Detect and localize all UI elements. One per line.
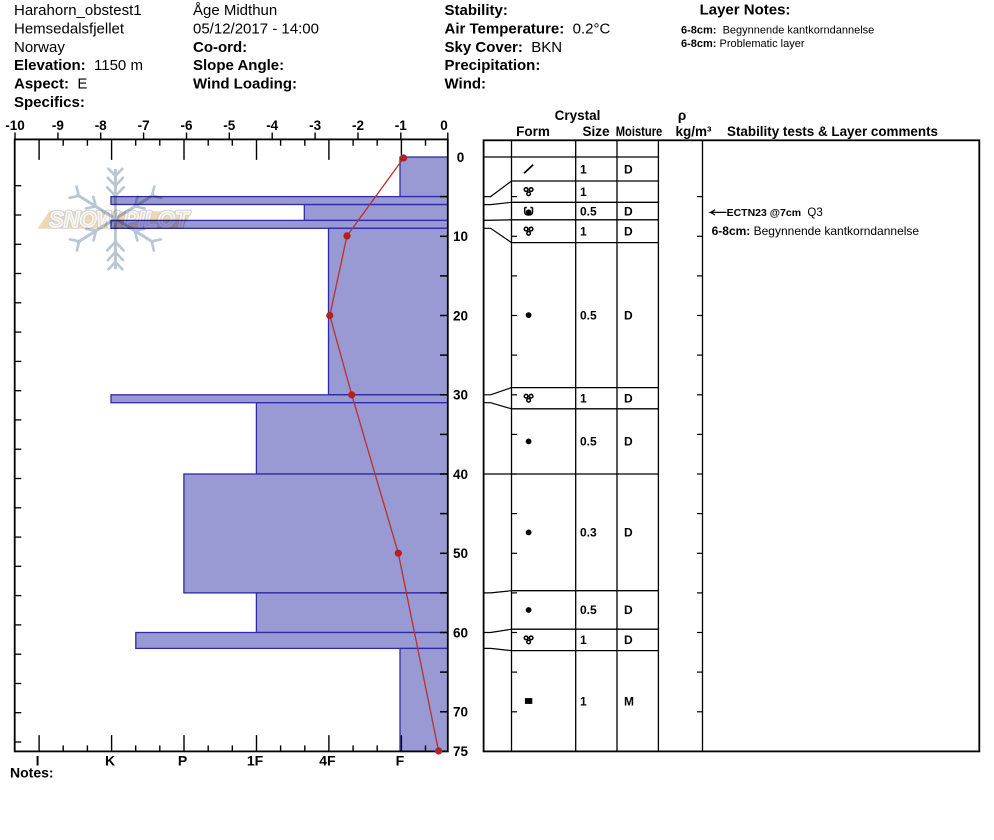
svg-text:6-8cm: Begynnende kantkorndan: 6-8cm: Begynnende kantkorndannelse — [681, 25, 874, 37]
svg-text:P: P — [178, 753, 187, 769]
svg-text:0: 0 — [440, 118, 448, 133]
svg-text:1: 1 — [580, 694, 587, 708]
svg-text:0.3: 0.3 — [580, 526, 597, 540]
svg-text:50: 50 — [453, 546, 468, 561]
svg-text:D: D — [624, 526, 633, 540]
svg-text:0.5: 0.5 — [580, 308, 597, 322]
svg-text:Wind Loading:: Wind Loading: — [193, 76, 297, 93]
svg-text:Stability tests & Layer commen: Stability tests & Layer comments — [727, 124, 938, 139]
svg-text:-3: -3 — [309, 118, 321, 133]
svg-text:-10: -10 — [5, 118, 25, 133]
svg-text:D: D — [624, 603, 633, 617]
svg-text:D: D — [624, 225, 633, 239]
svg-text:Aspect: E: Aspect: E — [14, 76, 87, 93]
svg-text:60: 60 — [453, 625, 468, 640]
svg-text:Air Temperature: 0.2°C: Air Temperature: 0.2°C — [445, 21, 611, 38]
svg-text:Specifics:: Specifics: — [14, 94, 85, 111]
svg-text:Layer Notes:: Layer Notes: — [700, 2, 791, 19]
svg-text:Slope Angle:: Slope Angle: — [193, 57, 284, 74]
svg-text:6-8cm: Problematic layer: 6-8cm: Problematic layer — [681, 38, 805, 50]
svg-text:Moisture: Moisture — [616, 124, 663, 139]
svg-text:D: D — [624, 633, 633, 647]
svg-text:6-8cm: Begynnende kantkorndann: 6-8cm: Begynnende kantkorndannelse — [712, 224, 920, 238]
svg-text:-4: -4 — [266, 118, 278, 133]
svg-text:1: 1 — [580, 633, 587, 647]
svg-text:0: 0 — [457, 150, 465, 165]
svg-text:Notes:: Notes: — [10, 765, 54, 781]
svg-text:D: D — [624, 162, 633, 176]
svg-text:-5: -5 — [223, 118, 235, 133]
svg-text:Norway: Norway — [14, 39, 65, 56]
svg-text:Åge Midthun: Åge Midthun — [193, 2, 277, 19]
svg-text:kg/m³: kg/m³ — [675, 124, 712, 139]
svg-text:Size: Size — [582, 124, 610, 139]
svg-text:D: D — [624, 204, 633, 218]
svg-text:D: D — [624, 392, 633, 406]
svg-text:1: 1 — [580, 185, 587, 199]
svg-text:K: K — [105, 753, 115, 769]
svg-text:-7: -7 — [138, 118, 150, 133]
svg-text:-9: -9 — [52, 118, 64, 133]
svg-text:Precipitation:: Precipitation: — [445, 57, 541, 74]
svg-text:D: D — [624, 308, 633, 322]
svg-text:Hemsedalsfjellet: Hemsedalsfjellet — [14, 21, 125, 38]
svg-text:10: 10 — [453, 229, 468, 244]
svg-text:40: 40 — [453, 467, 468, 482]
svg-text:Harahorn_obstest1: Harahorn_obstest1 — [14, 2, 142, 19]
svg-text:4F: 4F — [319, 753, 336, 769]
svg-text:F: F — [396, 753, 405, 769]
svg-text:30: 30 — [453, 388, 468, 403]
svg-text:Crystal: Crystal — [555, 108, 601, 123]
svg-text:M: M — [624, 694, 634, 708]
svg-text:1: 1 — [580, 392, 587, 406]
svg-text:ρ: ρ — [678, 108, 686, 123]
svg-text:D: D — [624, 435, 633, 449]
svg-text:Stability:: Stability: — [445, 2, 508, 19]
svg-text:ECTN23 @7cm Q3: ECTN23 @7cm Q3 — [727, 207, 823, 219]
svg-text:0.5: 0.5 — [580, 603, 597, 617]
svg-text:Elevation: 1150 m: Elevation: 1150 m — [14, 57, 143, 74]
svg-text:75: 75 — [453, 744, 469, 759]
svg-text:Wind:: Wind: — [445, 76, 487, 93]
svg-text:70: 70 — [453, 705, 468, 720]
svg-text:1F: 1F — [247, 753, 264, 769]
svg-text:-6: -6 — [180, 118, 192, 133]
svg-text:-1: -1 — [395, 118, 407, 133]
svg-text:-2: -2 — [352, 118, 364, 133]
svg-text:SNOW PILOT: SNOW PILOT — [49, 207, 190, 232]
svg-text:Co-ord:: Co-ord: — [193, 39, 247, 56]
svg-text:1: 1 — [580, 225, 587, 239]
svg-text:0.5: 0.5 — [580, 435, 597, 449]
svg-text:05/12/2017 - 14:00: 05/12/2017 - 14:00 — [193, 21, 319, 38]
svg-text:0.5: 0.5 — [580, 204, 597, 218]
svg-text:-8: -8 — [95, 118, 107, 133]
svg-text:1: 1 — [580, 162, 587, 176]
svg-text:Sky Cover: BKN: Sky Cover: BKN — [445, 39, 563, 56]
svg-text:20: 20 — [453, 308, 468, 323]
svg-text:Form: Form — [516, 124, 550, 139]
